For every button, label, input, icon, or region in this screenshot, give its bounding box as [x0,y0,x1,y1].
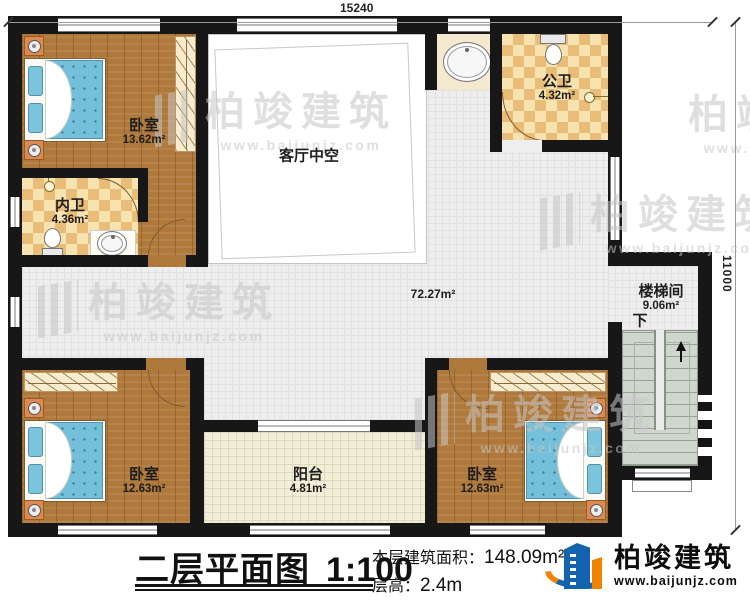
stair-center-rail [654,330,666,430]
ceiling-lamp-stem [593,96,608,97]
room-label-stairwell: 楼梯间 9.06m² [638,283,683,313]
baijun-logo-icon [548,543,606,595]
window [58,525,157,535]
lamp-icon [28,40,41,53]
bedroom-right-doorway [449,358,487,370]
toilet-bowl-icon [545,44,562,65]
floor-plan: 柏竣建筑 www.baijunjz.com 柏竣建筑 www.baijunjz.… [0,0,750,600]
exterior-wall-right-lower [608,322,622,537]
lamp-icon [28,504,41,517]
floor-area-line: 本层建筑面积：148.09m² [372,544,564,572]
wardrobe [175,36,196,152]
room-area: 4.32m² [539,90,575,103]
pillow [587,464,602,494]
watermark-text: 柏竣建筑 www.baijunjz.com [688,95,750,156]
nightstand [586,398,606,418]
nightstand [24,140,44,160]
sink-nook-wall-left [425,16,437,90]
window [448,18,490,32]
public-bath-wall-left [490,16,502,152]
sink-basin-icon [443,42,491,82]
window [58,18,160,32]
logo-building-orange [592,557,602,589]
dimension-height-label: 11000 [720,255,734,293]
floor-height-label: 层高： [372,578,420,595]
window [237,18,397,32]
toilet-tank-icon [540,34,566,44]
pillow [587,427,602,457]
bed [524,420,606,502]
ceiling-lamp-icon [44,181,55,192]
stair-direction-arrow-stem [680,346,682,362]
room-label-balcony: 阳台 4.81m² [290,466,326,496]
room-name: 卧室 [123,466,166,483]
toilet-bowl-icon [44,228,61,248]
watermark-brand: 柏竣建筑 [688,95,750,135]
drawing-info: 本层建筑面积：148.09m² 层高：2.4m [372,544,564,599]
nightstand [24,398,44,418]
inner-bath-wall-right [138,168,148,222]
room-name: 卧室 [123,117,166,134]
bedroom-top-wall-right [196,34,208,267]
room-label-hallway: 72.27m² [411,288,456,302]
brand-text-block: 柏竣建筑 www.baijunjz.com [614,544,738,588]
room-name: 楼梯间 [638,283,683,300]
dimension-width-label: 15240 [340,1,373,15]
public-bath-doorway [502,140,542,152]
wardrobe-rod [28,383,116,384]
floor-height-value: 2.4m [420,575,462,596]
title-block: 二层平面图 1:100 本层建筑面积：148.09m² 层高：2.4m 柏竣建筑… [0,540,750,600]
pillow [28,427,43,457]
floor-area-label: 本层建筑面积： [372,550,484,567]
window [10,197,20,227]
bedroom-left-doorway [146,358,186,370]
room-name: 公卫 [539,73,575,90]
lamp-icon [590,402,603,415]
room-area: 12.63m² [123,483,166,496]
dimension-line-right [735,22,736,530]
window [250,525,390,535]
room-label-living-void: 客厅中空 [279,147,339,164]
room-label-public-bath: 公卫 4.32m² [539,73,575,103]
room-area: 4.81m² [290,483,326,496]
room-name: 内卫 [52,197,88,214]
title-underline [135,584,373,591]
lamp-icon [590,504,603,517]
window [610,157,620,240]
bed [24,58,106,142]
wardrobe-rod [186,40,187,150]
stair-down-label: 下 [632,312,647,329]
watermark: 柏竣建筑 www.baijunjz.com [688,95,750,156]
exterior-step [632,480,692,492]
watermark-site: www.baijunjz.com [688,140,750,156]
inner-bath-wall-top [22,168,140,178]
ceiling-lamp-icon [584,92,595,103]
nightstand [24,36,44,56]
room-area: 9.06m² [638,300,683,313]
lamp-icon [28,402,41,415]
direction-text: 下 [632,312,647,329]
lamp-icon [28,144,41,157]
nightstand [586,500,606,520]
room-label-bedroom-top: 卧室 13.62m² [123,117,166,147]
nightstand [24,500,44,520]
room-label-bedroom-left: 卧室 12.63m² [123,466,166,496]
room-area: 12.63m² [461,483,504,496]
stair-wing-vent-grille [698,395,712,465]
room-label-inner-bath: 内卫 4.36m² [52,197,88,227]
stair-wing-wall-top [608,252,712,266]
logo-building-blue [564,543,590,589]
bedroom-top-doorway [148,255,186,267]
room-name: 阳台 [290,466,326,483]
balcony-sliding-door [258,420,370,432]
wardrobe [490,372,606,392]
room-name: 卧室 [461,466,504,483]
room-area: 13.62m² [123,134,166,147]
pillow [28,464,43,494]
bedroom-right-wall-left [425,358,437,537]
room-area: 4.36m² [52,214,88,227]
bedroom-left-wall-right [190,358,204,537]
bed [24,420,106,502]
window [10,297,20,327]
room-area: 72.27m² [411,287,456,301]
wardrobe [24,372,118,392]
room-name: 客厅中空 [279,147,339,164]
window [470,525,545,535]
room-label-bedroom-right: 卧室 12.63m² [461,466,504,496]
pillow [28,103,43,133]
floor-height-line: 层高：2.4m [372,572,564,600]
pillow [28,66,43,96]
brand-website: www.baijunjz.com [614,574,738,588]
exterior-wall-left [8,16,22,537]
stair-access-floor [608,266,622,330]
dimension-line-top [8,22,712,23]
wardrobe-rod [494,383,604,384]
window [635,468,690,478]
brand-name: 柏竣建筑 [614,544,738,574]
sink-basin-icon [97,231,127,256]
